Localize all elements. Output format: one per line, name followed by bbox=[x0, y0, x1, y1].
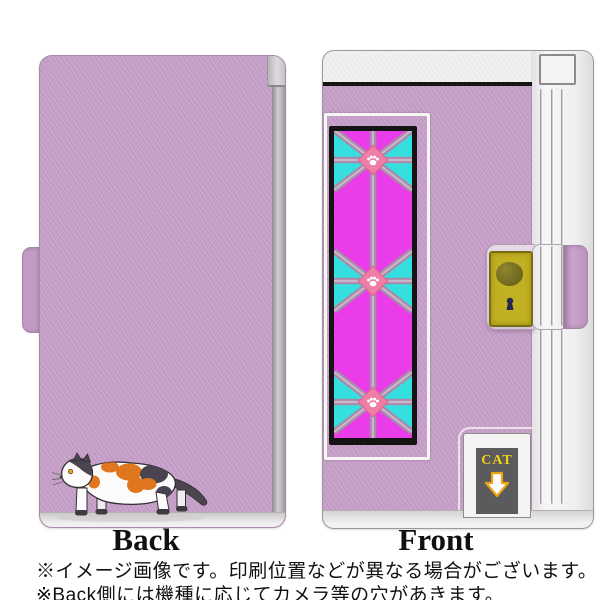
calico-cat-illustration bbox=[52, 452, 217, 524]
cat-ear bbox=[73, 453, 82, 461]
back-label: Back bbox=[112, 522, 179, 558]
down-arrow-icon bbox=[483, 470, 511, 498]
cat-near-front-leg bbox=[76, 488, 87, 511]
front-top-black-line bbox=[323, 82, 532, 86]
clasp-strap-tip bbox=[563, 245, 588, 329]
front-case: CAT bbox=[322, 50, 594, 529]
caption-line-2: ※Back側には機種に応じてカメラ等の穴があきます。 bbox=[36, 580, 504, 600]
window-glass-pattern bbox=[334, 131, 412, 438]
cat-far-hind-leg bbox=[177, 490, 186, 508]
back-case bbox=[39, 55, 286, 528]
product-image: CAT Back Front ※イメージ画像です。印刷位置などが異なる場合がござ… bbox=[0, 0, 600, 600]
cat-eye bbox=[68, 469, 73, 474]
caption-line-1: ※イメージ画像です。印刷位置などが異なる場合がございます。 bbox=[36, 556, 597, 583]
cat-door-panel: CAT bbox=[476, 448, 518, 514]
cat-door-frame: CAT bbox=[463, 433, 531, 518]
front-top-square bbox=[539, 54, 576, 85]
keyhole-icon bbox=[503, 297, 517, 313]
cat-ear bbox=[83, 454, 91, 462]
spine-groove-line bbox=[540, 246, 543, 326]
clasp-strap-middle bbox=[532, 244, 567, 330]
cat-nose bbox=[60, 476, 62, 478]
knob-plate bbox=[489, 251, 533, 327]
spine-groove-line bbox=[551, 246, 554, 326]
door-knob-icon bbox=[496, 262, 523, 286]
back-spine-strip bbox=[272, 56, 285, 527]
front-label: Front bbox=[398, 522, 473, 558]
cat-door-text: CAT bbox=[476, 453, 518, 469]
back-top-notch bbox=[267, 56, 286, 87]
